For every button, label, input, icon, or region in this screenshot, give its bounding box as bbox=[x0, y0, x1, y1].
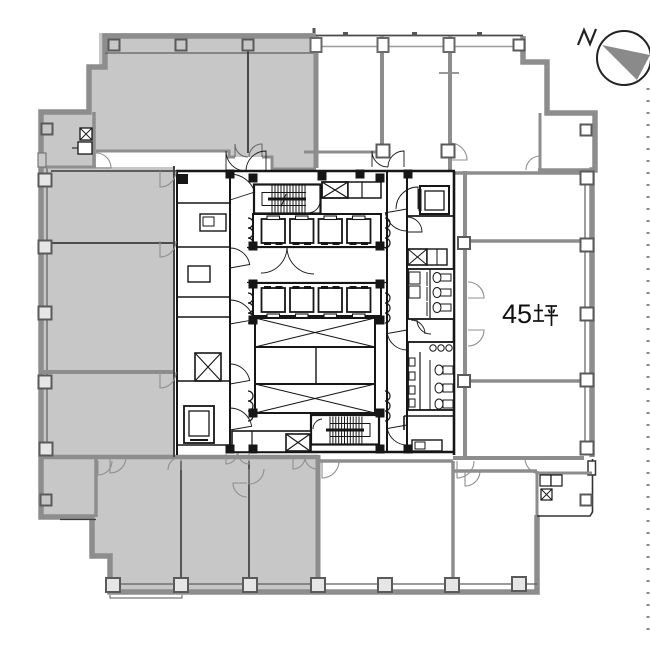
svg-text:45: 45 bbox=[502, 299, 532, 329]
